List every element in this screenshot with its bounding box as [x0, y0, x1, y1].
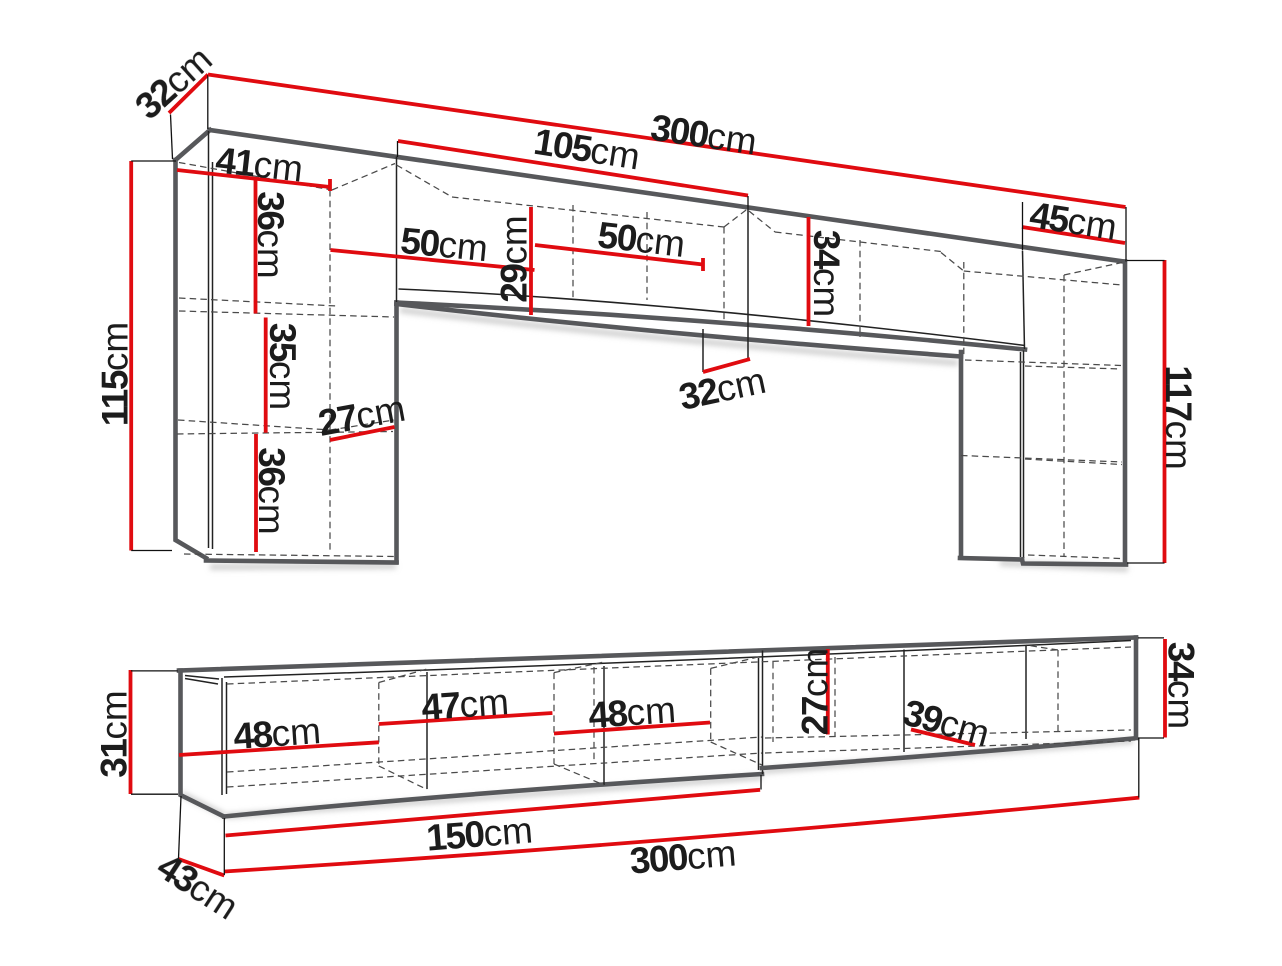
svg-text:34cm: 34cm [806, 230, 847, 317]
svg-text:300cm: 300cm [628, 832, 737, 881]
svg-text:27cm: 27cm [795, 648, 836, 735]
svg-text:48cm: 48cm [587, 689, 677, 736]
svg-text:36cm: 36cm [250, 191, 291, 278]
svg-text:29cm: 29cm [494, 215, 535, 302]
svg-text:115cm: 115cm [95, 322, 136, 427]
svg-text:48cm: 48cm [232, 710, 322, 757]
svg-text:50cm: 50cm [399, 220, 490, 269]
svg-text:35cm: 35cm [262, 323, 303, 410]
svg-text:34cm: 34cm [1161, 642, 1202, 729]
svg-text:36cm: 36cm [251, 447, 292, 534]
svg-text:31cm: 31cm [94, 690, 135, 777]
svg-text:47cm: 47cm [420, 681, 510, 728]
svg-text:117cm: 117cm [1158, 365, 1199, 470]
